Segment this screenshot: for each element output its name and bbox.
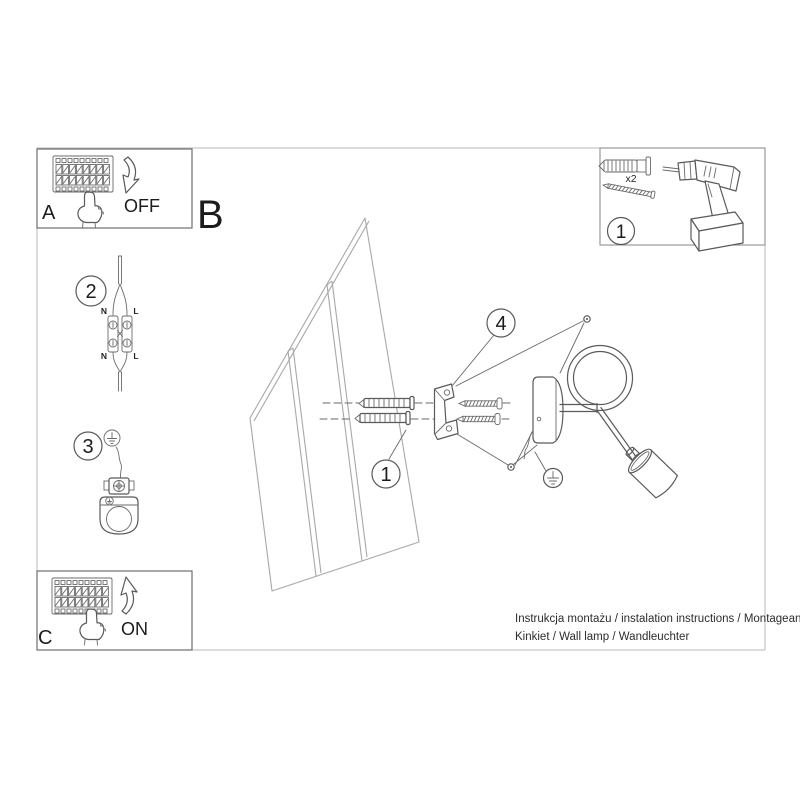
tools-box: x2 1 — [599, 148, 765, 251]
power-off-box: OFF A — [37, 149, 192, 228]
on-label: ON — [121, 619, 148, 639]
lamp-arm — [560, 346, 636, 460]
wire-split-top — [113, 284, 127, 315]
terminal-block-icon — [108, 316, 132, 352]
earth-symbol-icon — [535, 452, 563, 488]
box-c-label: C — [38, 627, 52, 649]
screw-icon — [459, 398, 502, 409]
breaker-panel-icon — [52, 578, 112, 614]
wire-label-l-bottom: L — [133, 351, 138, 361]
lamp-canopy — [524, 377, 563, 459]
step-4-number: 4 — [495, 313, 506, 335]
breaker-panel-icon — [53, 156, 113, 192]
footer-line-1: Instrukcja montażu / instalation instruc… — [515, 613, 800, 625]
step-1-pointer-number: 1 — [380, 464, 391, 486]
wall-plug-icon — [355, 412, 410, 425]
drill-icon — [663, 160, 743, 251]
step-3-number: 3 — [82, 436, 93, 458]
step-2-number: 2 — [85, 281, 96, 303]
screw-icon — [457, 414, 500, 425]
wall-lamp-drawing — [524, 346, 679, 500]
box-c-border — [37, 571, 192, 650]
fixing-screw-icon — [584, 316, 590, 322]
lamp-base-icon — [100, 497, 138, 534]
arrow-down-icon — [123, 157, 139, 193]
cable-bottom — [119, 372, 122, 391]
footer-line-2: Kinkiet / Wall lamp / Wandleuchter — [515, 631, 689, 643]
lamp-shade — [618, 439, 680, 500]
wire-merge-bottom — [113, 352, 127, 372]
mounting-bracket-icon — [435, 384, 459, 440]
fixing-screw-icon — [508, 464, 514, 470]
earth-symbol-icon — [104, 430, 120, 446]
pointer-line — [457, 421, 538, 465]
hand-press-icon — [78, 192, 104, 228]
pointer-line — [452, 335, 494, 386]
power-on-box: ON C — [37, 571, 192, 650]
wall-plug-icon — [359, 397, 414, 410]
footer: Instrukcja montażu / instalation instruc… — [515, 613, 800, 643]
ground-terminal-icon — [104, 478, 134, 494]
wire-label-n-top: N — [101, 306, 107, 316]
section-b-label: B — [197, 193, 224, 237]
wiring-diagram: 2 N L N L — [76, 256, 139, 391]
wire-label-n-bottom: N — [101, 351, 107, 361]
cable-top — [119, 256, 122, 284]
wire-label-l-top: L — [133, 306, 138, 316]
instruction-sheet: OFF A B 2 N L N L 3 — [0, 0, 800, 800]
off-label: OFF — [124, 196, 160, 216]
ground-wire — [116, 447, 121, 477]
anchor-quantity-label: x2 — [625, 173, 636, 185]
instruction-drawing: OFF A B 2 N L N L 3 — [0, 0, 800, 800]
step-1-number: 1 — [616, 222, 627, 243]
grounding-diagram: 3 — [74, 430, 138, 534]
pointer-line — [456, 321, 584, 386]
box-a-label: A — [42, 202, 56, 224]
arrow-up-icon — [121, 577, 137, 614]
